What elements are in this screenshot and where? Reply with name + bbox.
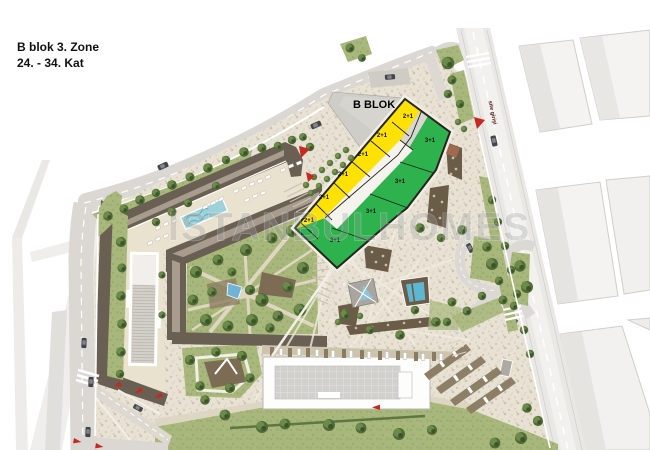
svg-text:ISTANBULHOMES: ISTANBULHOMES	[168, 206, 531, 249]
svg-text:2+1: 2+1	[319, 195, 330, 201]
svg-text:2+1: 2+1	[403, 114, 414, 120]
svg-text:2+1: 2+1	[338, 172, 349, 178]
svg-text:3+1: 3+1	[395, 179, 406, 185]
svg-text:2+1: 2+1	[358, 152, 369, 158]
svg-text:B BLOK: B BLOK	[353, 99, 395, 111]
svg-text:3+1: 3+1	[425, 138, 436, 144]
svg-text:24. - 34. Kat: 24. - 34. Kat	[17, 56, 84, 70]
svg-text:2+1: 2+1	[377, 133, 388, 139]
svg-text:B blok 3. Zone: B blok 3. Zone	[17, 40, 99, 54]
